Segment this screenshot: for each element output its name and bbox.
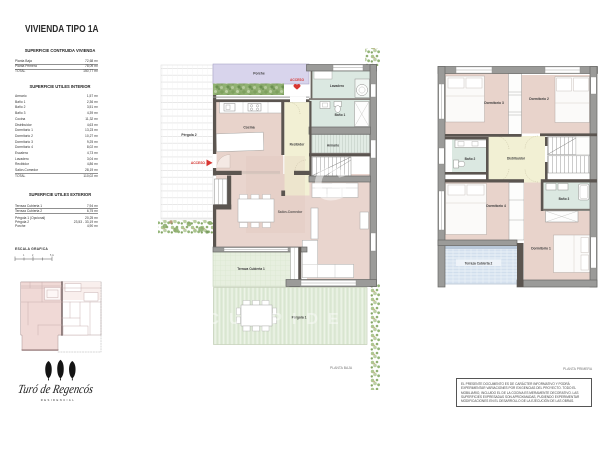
svg-text:Dormitorio 4: Dormitorio 4	[486, 204, 506, 208]
svg-text:Distribuidor: Distribuidor	[507, 157, 526, 161]
svg-text:1: 1	[23, 254, 25, 257]
svg-text:Baño 3: Baño 3	[559, 197, 570, 201]
svg-text:Terraza Cubierta 2: Terraza Cubierta 2	[465, 262, 493, 266]
svg-text:ACCESO: ACCESO	[290, 78, 305, 82]
svg-text:Recibidor: Recibidor	[290, 143, 305, 147]
svg-text:Turó de Regencós: Turó de Regencós	[17, 382, 95, 396]
svg-text:Terraza Cubierta 1: Terraza Cubierta 1	[237, 267, 265, 271]
svg-text:Cocina: Cocina	[243, 126, 254, 130]
svg-text:Porche: Porche	[253, 72, 265, 76]
svg-text:ACCESO: ACCESO	[191, 161, 206, 165]
svg-text:2: 2	[32, 254, 34, 257]
svg-text:Dormitorio 2: Dormitorio 2	[529, 97, 549, 101]
svg-text:Dormitorio 3: Dormitorio 3	[484, 101, 504, 105]
svg-text:Armario: Armario	[327, 144, 339, 148]
svg-text:RESIDENCIAL: RESIDENCIAL	[41, 398, 75, 402]
svg-text:CUSPIDE: CUSPIDE	[207, 311, 348, 328]
svg-text:Dormitorio 1: Dormitorio 1	[531, 247, 551, 251]
svg-text:Baño 2: Baño 2	[465, 157, 476, 161]
svg-text:Pérgola 2: Pérgola 2	[181, 133, 196, 137]
svg-text:Baño 1: Baño 1	[335, 113, 346, 117]
svg-text:Lavadero: Lavadero	[330, 84, 344, 88]
svg-text:G: G	[313, 158, 349, 210]
svg-text:5 m: 5 m	[50, 254, 54, 257]
